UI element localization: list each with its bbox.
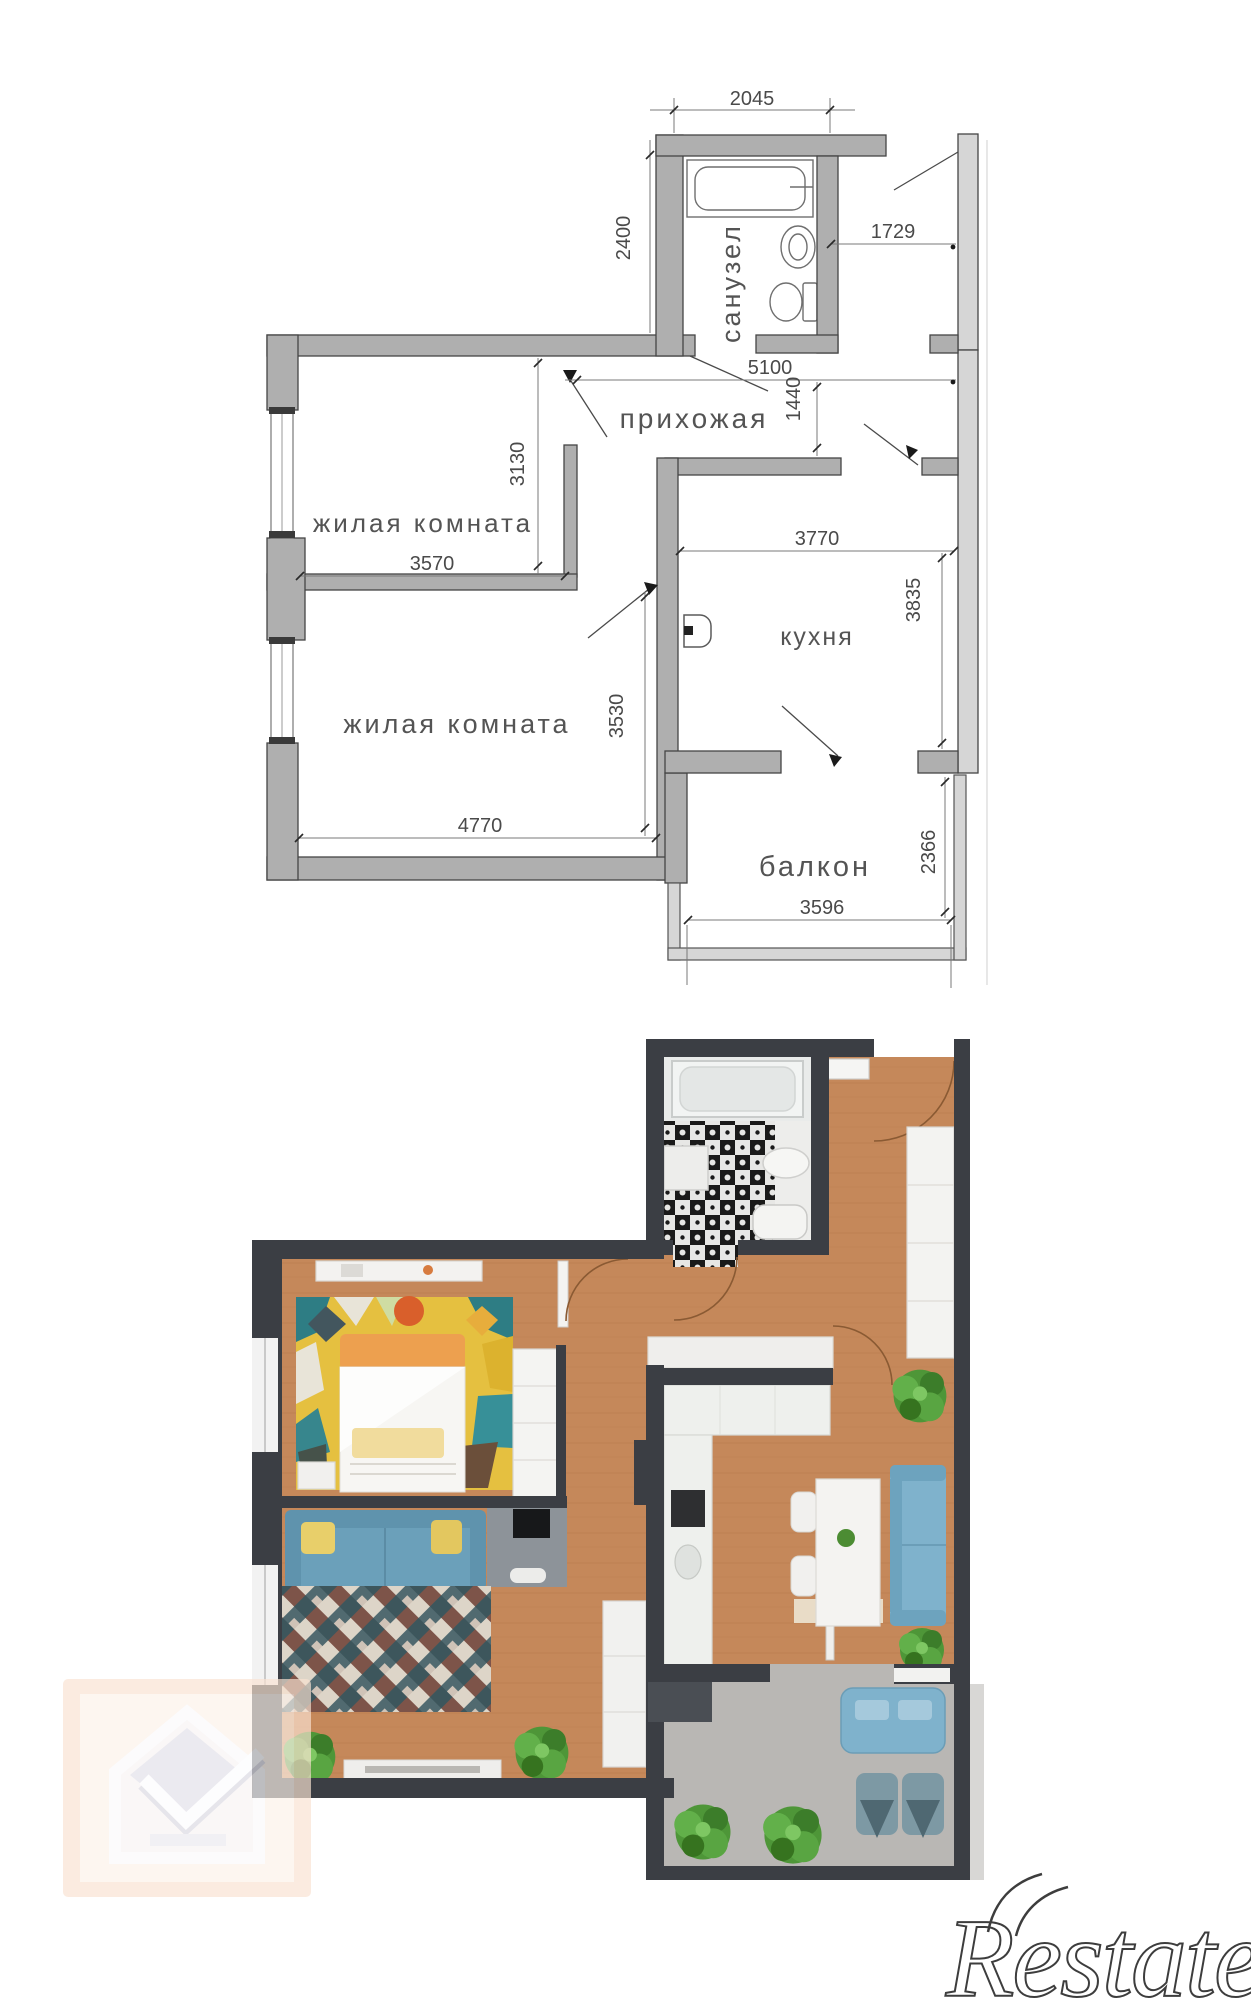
svg-text:балкон: балкон	[759, 851, 871, 883]
svg-text:3770: 3770	[795, 528, 840, 550]
svg-text:3530: 3530	[606, 694, 628, 739]
svg-text:3130: 3130	[507, 442, 529, 487]
svg-text:4770: 4770	[458, 815, 503, 837]
svg-text:Restate: Restate	[945, 1897, 1251, 2000]
svg-text:5100: 5100	[748, 357, 793, 379]
svg-text:2366: 2366	[918, 830, 940, 875]
svg-text:3835: 3835	[903, 578, 925, 623]
svg-text:2045: 2045	[730, 88, 775, 110]
svg-text:жилая комната: жилая комната	[313, 508, 533, 538]
svg-text:3596: 3596	[800, 897, 845, 919]
svg-text:кухня: кухня	[780, 623, 854, 651]
svg-text:1440: 1440	[783, 377, 805, 422]
svg-text:жилая комната: жилая комната	[343, 709, 570, 739]
svg-text:1729: 1729	[871, 221, 916, 243]
svg-text:3570: 3570	[410, 553, 455, 575]
svg-text:2400: 2400	[613, 216, 635, 261]
svg-text:санузел: санузел	[716, 223, 746, 343]
svg-text:прихожая: прихожая	[620, 403, 769, 434]
